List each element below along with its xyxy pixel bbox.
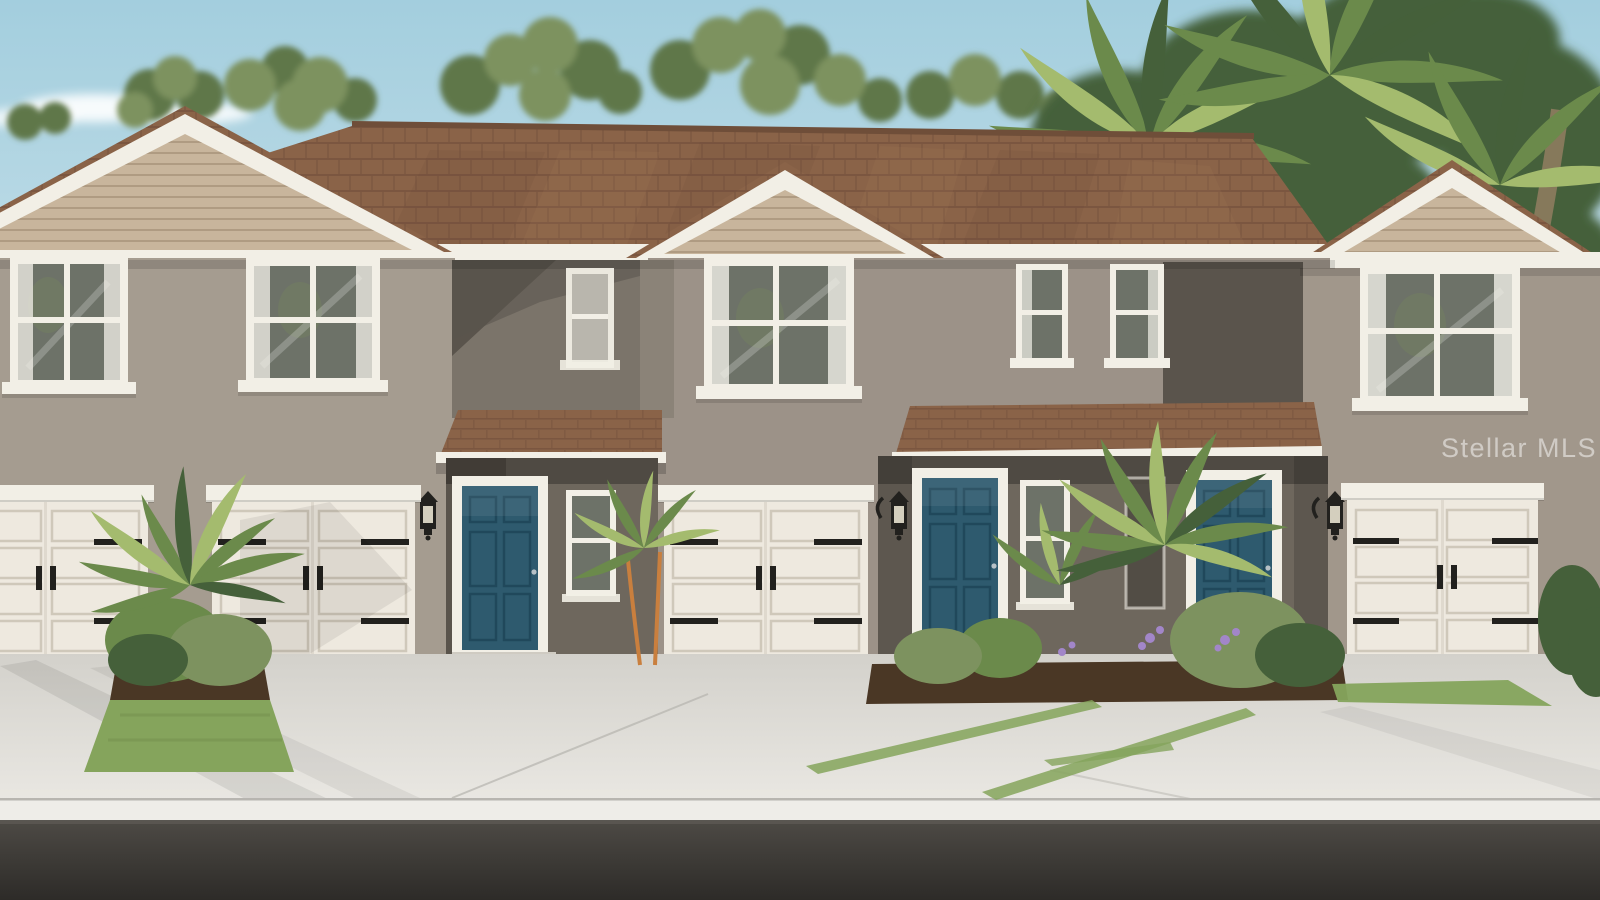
road — [0, 820, 1600, 900]
townhome-rendering: Stellar MLS — [0, 0, 1600, 900]
right-eave-fascia — [1298, 252, 1600, 268]
window — [560, 268, 620, 370]
garage-door — [1341, 483, 1544, 660]
window — [238, 258, 388, 396]
window — [2, 256, 136, 398]
window — [1104, 264, 1170, 368]
watermark: Stellar MLS — [1441, 433, 1597, 463]
entry-door-1 — [452, 476, 556, 661]
entry-recess-upper — [452, 260, 674, 418]
listing-photo: Stellar MLS — [0, 0, 1600, 900]
window — [696, 258, 862, 403]
window — [1352, 266, 1528, 415]
sidewalk-curb — [0, 798, 1600, 820]
garage-door — [658, 485, 874, 660]
window — [1010, 264, 1074, 368]
sidelight-window — [562, 490, 620, 602]
porch-recess-upper — [1163, 262, 1303, 410]
